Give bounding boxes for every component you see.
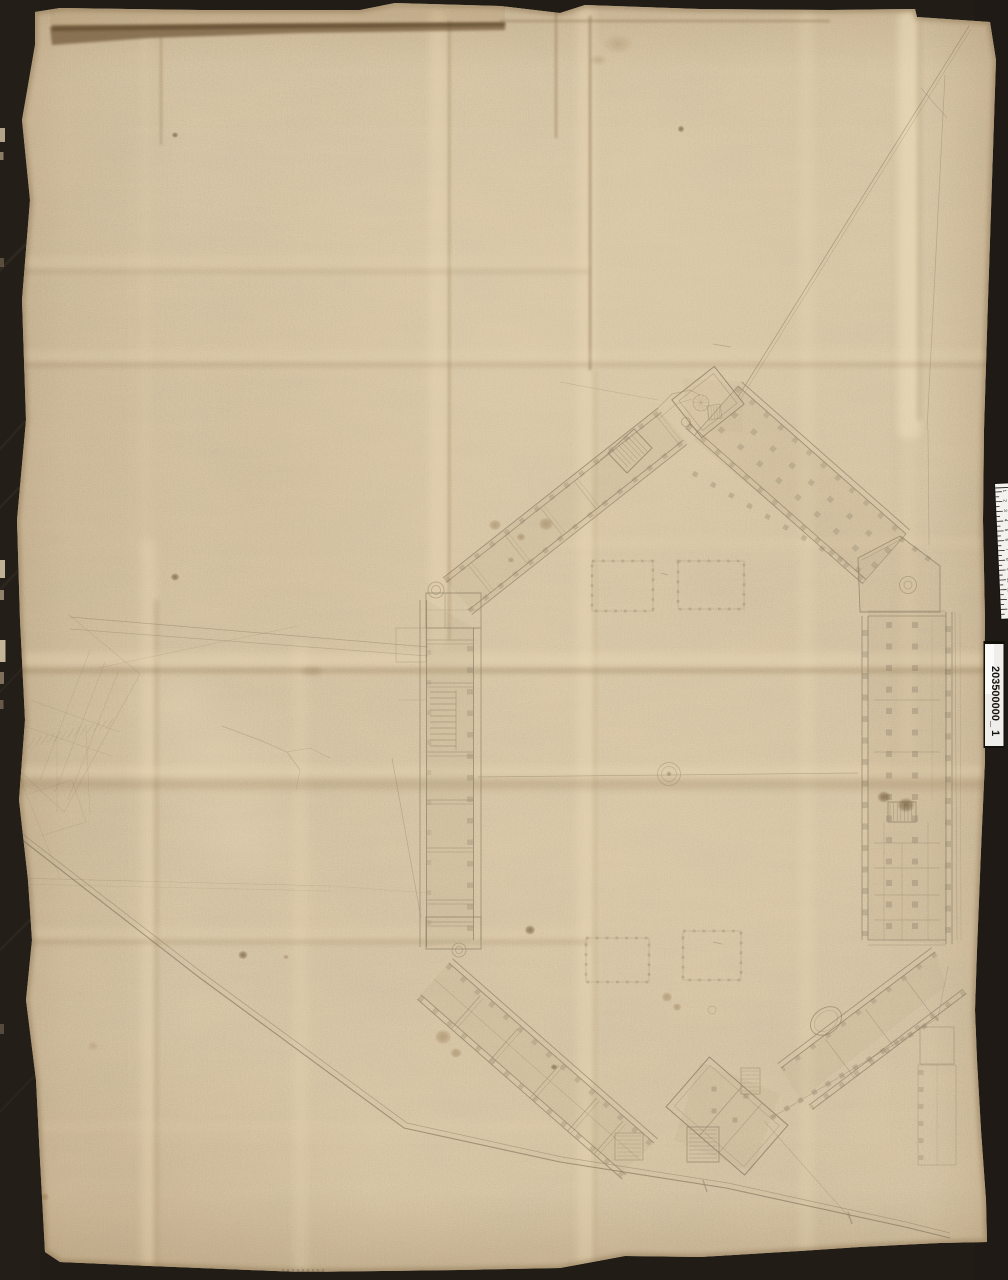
svg-text:203500000_ 1: 203500000_ 1: [989, 666, 1001, 736]
